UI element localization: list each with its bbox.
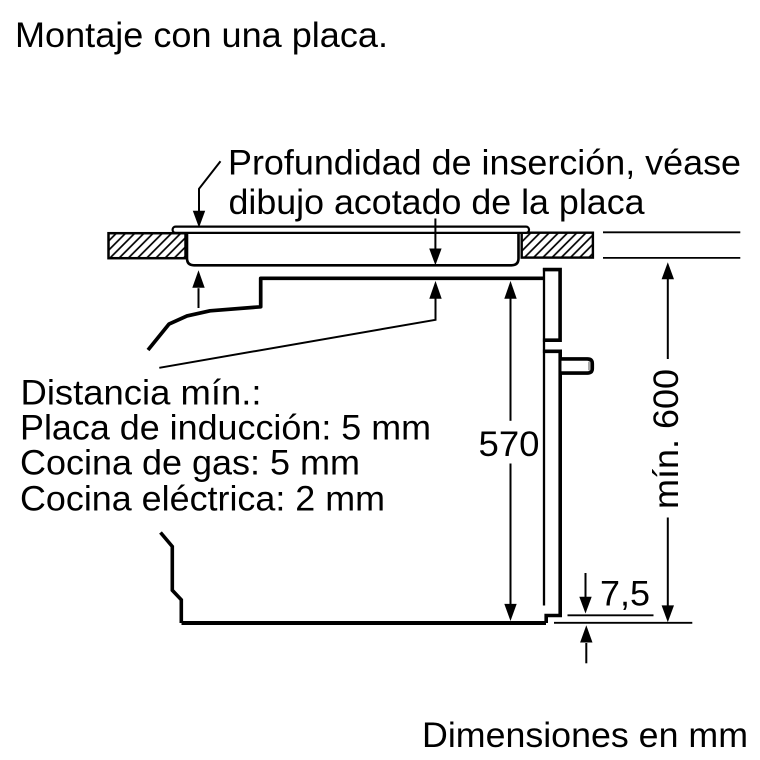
- svg-text:Cocina eléctrica: 2 mm: Cocina eléctrica: 2 mm: [20, 479, 385, 519]
- svg-text:Placa de inducción: 5 mm: Placa de inducción: 5 mm: [20, 407, 431, 447]
- svg-text:Cocina de gas: 5 mm: Cocina de gas: 5 mm: [20, 443, 360, 483]
- svg-text:mín. 600: mín. 600: [646, 369, 686, 509]
- svg-text:Profundidad de inserción, véas: Profundidad de inserción, véase: [228, 143, 741, 183]
- svg-text:dibujo acotado de la placa: dibujo acotado de la placa: [229, 182, 645, 222]
- svg-text:Montaje con una placa.: Montaje con una placa.: [15, 15, 388, 55]
- svg-text:7,5: 7,5: [600, 574, 650, 614]
- svg-text:Dimensiones en mm: Dimensiones en mm: [422, 715, 748, 755]
- svg-text:Distancia mín.:: Distancia mín.:: [21, 372, 262, 412]
- svg-text:570: 570: [479, 424, 540, 464]
